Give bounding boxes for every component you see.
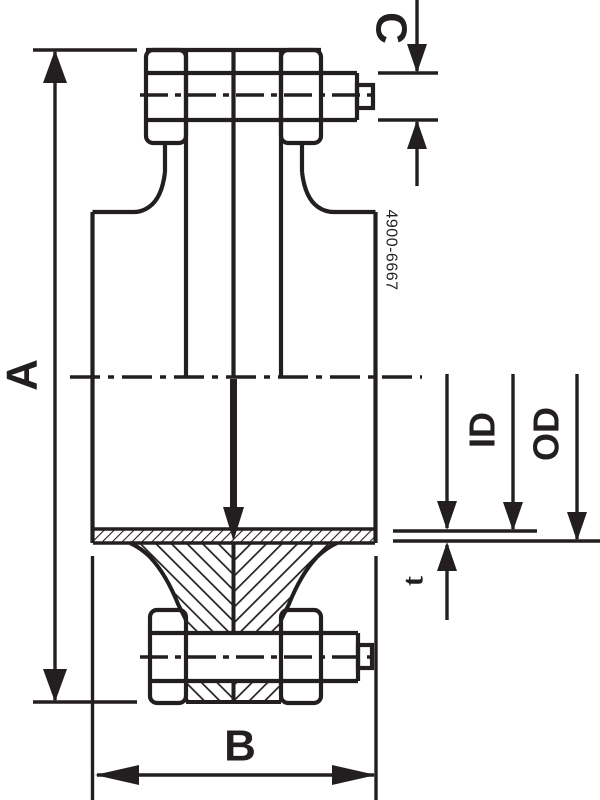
lower-flange-section-left: [130, 543, 234, 702]
arrow-up-icon: [43, 50, 67, 83]
gasket-extension-lines: [393, 531, 600, 541]
label-b: B: [224, 722, 256, 771]
arrow-down-icon: [43, 669, 67, 702]
arrow-down-icon: [567, 512, 587, 541]
arrow-left-icon: [95, 765, 139, 785]
arrow-down-icon: [437, 501, 457, 530]
label-t: t: [397, 576, 430, 586]
drawing-canvas: A B C t ID OD 4900-: [0, 0, 600, 800]
arrow-down-icon: [503, 502, 523, 531]
label-id: ID: [462, 412, 503, 448]
label-od: OD: [526, 407, 567, 461]
flange-gasket-technical-drawing: A B C t ID OD 4900-: [0, 0, 600, 800]
gasket-pointer-arrow: [223, 379, 244, 541]
label-a: A: [0, 359, 47, 391]
dimension-id: [503, 374, 523, 531]
arrow-down-icon: [407, 44, 427, 73]
arrow-right-icon: [332, 765, 376, 785]
dimension-od: [567, 374, 587, 541]
part-number: 4900-6667: [383, 209, 400, 290]
arrow-up-icon: [407, 120, 427, 149]
arrow-up-icon: [437, 542, 457, 571]
dimension-t: [437, 374, 457, 620]
label-c: C: [367, 12, 416, 44]
